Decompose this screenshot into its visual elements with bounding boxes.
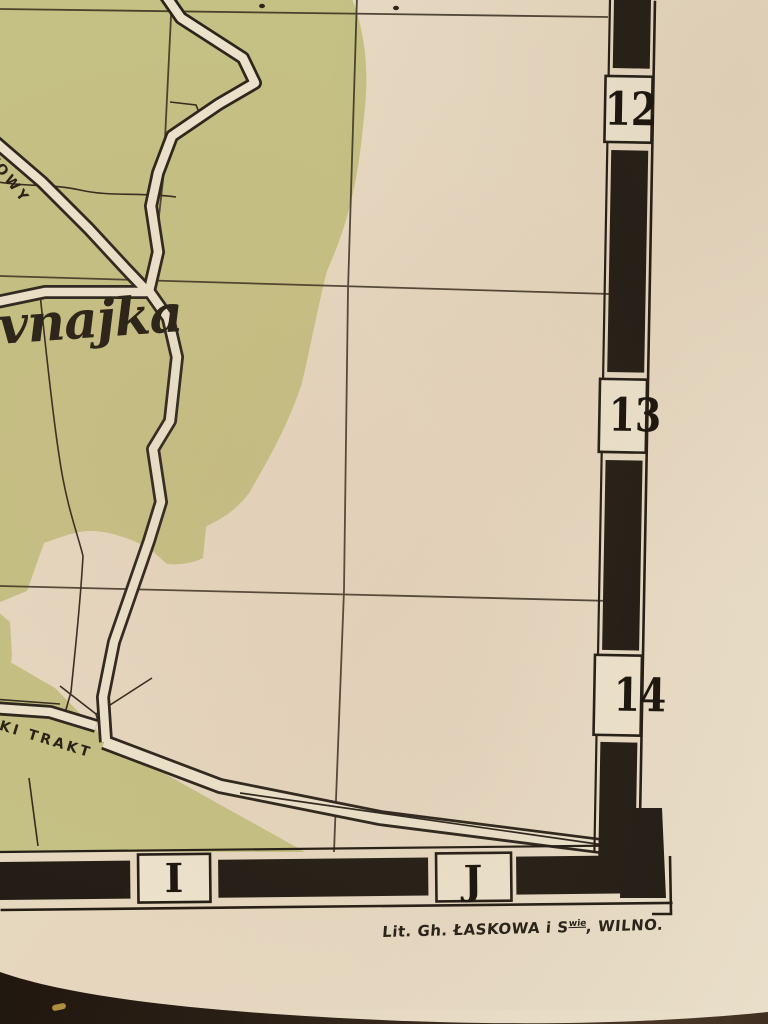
- border-right-segment: [613, 0, 651, 69]
- border-column-letter-j: J: [437, 857, 509, 904]
- ink-speck: [259, 4, 265, 8]
- river-name-label: vnajka: [0, 283, 184, 357]
- credit-suffix: , WILNO.: [585, 916, 664, 936]
- border-column-letter-i: I: [139, 855, 209, 902]
- border-corner-block: [620, 808, 666, 898]
- border-row-number-12: 12: [612, 79, 649, 140]
- border-right-segment: [602, 460, 642, 651]
- border-bottom-segment: [0, 861, 130, 900]
- border-row-number-14: 14: [621, 658, 658, 733]
- photo-of-map: vnajka KOWY KI TRAKT 12 13 14 I J Lit. G…: [0, 0, 768, 1024]
- ink-speck: [393, 6, 399, 10]
- border-row-number-13: 13: [616, 381, 653, 450]
- map-graphic: [0, 0, 768, 1024]
- border-bottom-segment: [218, 858, 428, 898]
- border-bottom-segment: [516, 855, 628, 894]
- credit-superscript: wie: [568, 919, 586, 929]
- border-right-segment: [607, 150, 648, 373]
